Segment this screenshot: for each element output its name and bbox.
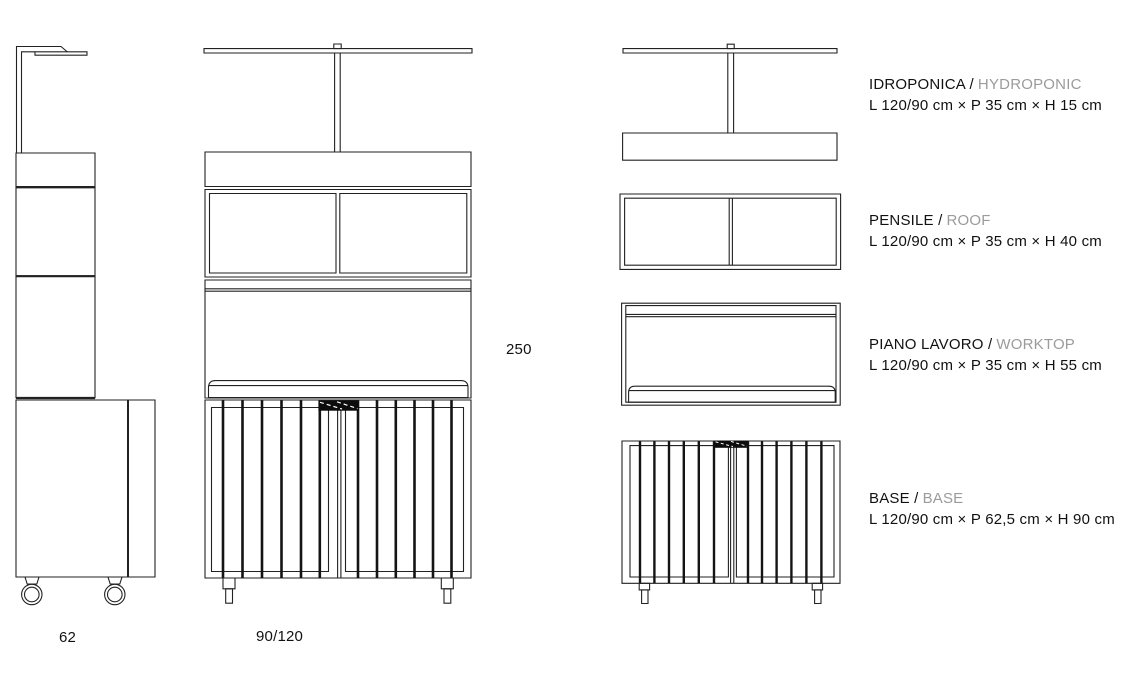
legend-title-italian: IDROPONICA /: [869, 76, 974, 93]
dimension-front-width: 90/120: [256, 628, 303, 645]
legend-item-roof: PENSILE /ROOF L 120/90 cm × P 35 cm × H …: [869, 210, 1102, 252]
exploded-hydroponic-module: [623, 44, 837, 160]
legend-title-italian: PENSILE /: [869, 212, 943, 229]
dimension-total-height: 250: [506, 341, 532, 358]
legend-title-english: WORKTOP: [996, 336, 1075, 353]
dimension-side-depth: 62: [59, 629, 76, 646]
legend-dimensions: L 120/90 cm × P 35 cm × H 55 cm: [869, 355, 1102, 376]
legend-title: BASE /BASE: [869, 488, 1115, 509]
legend-title-english: HYDROPONIC: [978, 76, 1082, 93]
exploded-roof-module: [620, 194, 841, 269]
legend-dimensions: L 120/90 cm × P 35 cm × H 40 cm: [869, 231, 1102, 252]
technical-drawing-canvas: 250 62 90/120 IDROPONICA /HYDROPONIC L 1…: [0, 0, 1141, 689]
legend-title-english: ROOF: [947, 212, 991, 229]
legend-title-italian: BASE /: [869, 490, 919, 507]
legend-title-english: BASE: [923, 490, 964, 507]
legend-title: PIANO LAVORO /WORKTOP: [869, 334, 1102, 355]
exploded-worktop-module: [622, 303, 841, 405]
exploded-base-module: [622, 441, 840, 604]
legend-item-hydroponic: IDROPONICA /HYDROPONIC L 120/90 cm × P 3…: [869, 74, 1102, 116]
legend-title: PENSILE /ROOF: [869, 210, 1102, 231]
legend-dimensions: L 120/90 cm × P 62,5 cm × H 90 cm: [869, 509, 1115, 530]
legend-title-italian: PIANO LAVORO /: [869, 336, 992, 353]
legend-title: IDROPONICA /HYDROPONIC: [869, 74, 1102, 95]
legend-dimensions: L 120/90 cm × P 35 cm × H 15 cm: [869, 95, 1102, 116]
legend-item-base: BASE /BASE L 120/90 cm × P 62,5 cm × H 9…: [869, 488, 1115, 530]
legend-item-worktop: PIANO LAVORO /WORKTOP L 120/90 cm × P 35…: [869, 334, 1102, 376]
